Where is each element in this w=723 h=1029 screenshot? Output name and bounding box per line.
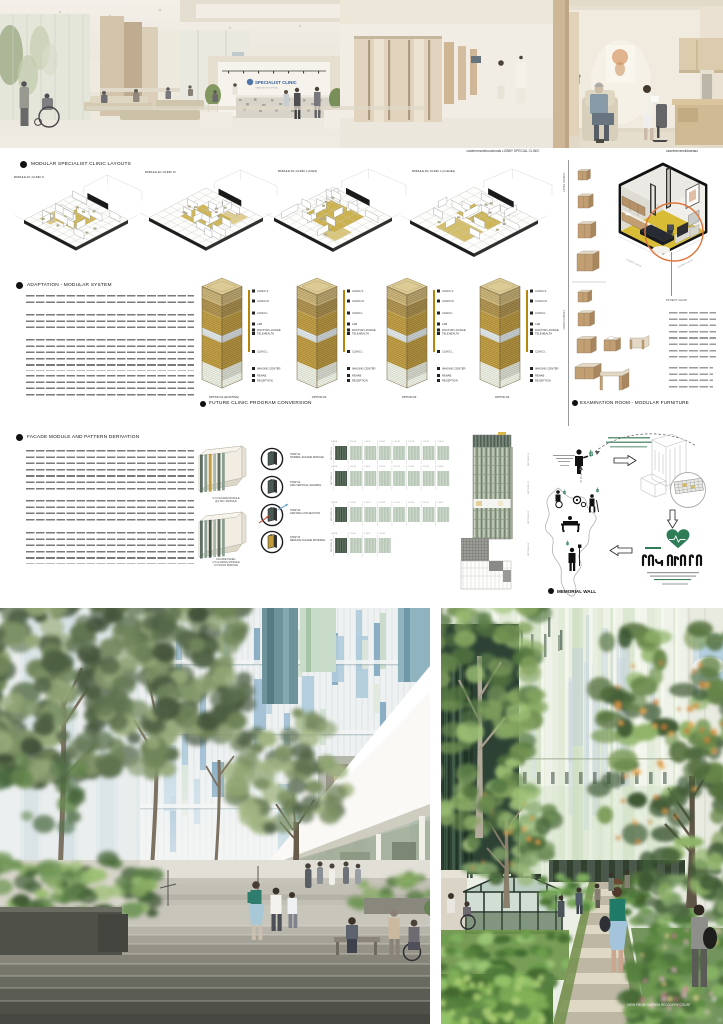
svg-text:1.50 M: 1.50 M [379, 441, 385, 443]
svg-text:IMAGING CENTER: IMAGING CENTER [442, 367, 466, 371]
svg-text:CLINIC L: CLINIC L [352, 350, 364, 354]
svg-text:1.50 M: 1.50 M [408, 466, 414, 468]
svg-text:DOCTOR LOUNGE: DOCTOR LOUNGE [442, 328, 466, 332]
svg-text:CLINIC S: CLINIC S [257, 289, 269, 293]
svg-text:RECEPTION: RECEPTION [257, 379, 273, 383]
svg-text:1.50 M: 1.50 M [423, 441, 429, 443]
svg-text:CLINIC 5.40 M: CLINIC 5.40 M [626, 258, 642, 268]
svg-text:1.50 M: 1.50 M [393, 502, 399, 504]
svg-text:CLINIC L: CLINIC L [442, 311, 454, 315]
svg-text:1.50 M: 1.50 M [364, 502, 370, 504]
svg-text:1.50 M: 1.50 M [393, 441, 399, 443]
svg-text:RECEPTION: RECEPTION [442, 379, 458, 383]
svg-text:1.50 M: 1.50 M [331, 533, 337, 535]
svg-text:TELEHEALTH: TELEHEALTH [535, 332, 552, 336]
svg-text:CLINIC M: CLINIC M [352, 299, 365, 303]
svg-text:1.50 M: 1.50 M [350, 533, 356, 535]
svg-text:1.50 M: 1.50 M [331, 502, 337, 504]
svg-text:REHAB: REHAB [442, 374, 451, 378]
svg-text:1.50 M: 1.50 M [364, 466, 370, 468]
svg-text:CLINIC S: CLINIC S [352, 289, 364, 293]
svg-text:CLINIC L: CLINIC L [442, 350, 454, 354]
svg-text:1.50 M: 1.50 M [364, 533, 370, 535]
svg-text:IMAGING CENTER: IMAGING CENTER [535, 367, 559, 371]
svg-text:1.50 M: 1.50 M [350, 466, 356, 468]
svg-text:1.50 M: 1.50 M [350, 502, 356, 504]
svg-text:1.50 M: 1.50 M [379, 533, 385, 535]
svg-text:MEMORIAL WALL: MEMORIAL WALL [557, 589, 596, 594]
svg-text:1.50 M: 1.50 M [350, 441, 356, 443]
svg-text:CLINIC M: CLINIC M [442, 299, 455, 303]
svg-text:IMAGING CENTER: IMAGING CENTER [257, 367, 281, 371]
svg-text:IMAGING CENTER: IMAGING CENTER [352, 367, 376, 371]
svg-text:B: B [589, 452, 594, 458]
svg-text:CLINIC L: CLINIC L [535, 311, 547, 315]
svg-text:LAB: LAB [352, 322, 357, 326]
svg-text:1.50 M: 1.50 M [379, 466, 385, 468]
svg-text:TELEHEALTH: TELEHEALTH [352, 332, 369, 336]
svg-text:CLINIC M: CLINIC M [535, 299, 548, 303]
svg-text:REHAB: REHAB [257, 374, 266, 378]
svg-text:TELEHEALTH: TELEHEALTH [257, 332, 274, 336]
svg-text:1.50 M: 1.50 M [423, 466, 429, 468]
svg-text:DOCTOR LOUNGE: DOCTOR LOUNGE [257, 328, 281, 332]
svg-text:CLINIC L: CLINIC L [257, 311, 269, 315]
svg-text:CLINIC L: CLINIC L [535, 350, 547, 354]
svg-text:1.50 M: 1.50 M [408, 441, 414, 443]
svg-text:1.50 M: 1.50 M [437, 466, 443, 468]
svg-text:LAB: LAB [257, 322, 262, 326]
svg-text:CLINIC L: CLINIC L [352, 311, 364, 315]
svg-text:TELEHEALTH: TELEHEALTH [442, 332, 459, 336]
svg-text:REHAB: REHAB [535, 374, 544, 378]
svg-text:RECEPTION: RECEPTION [535, 379, 551, 383]
svg-text:1.50 M: 1.50 M [393, 466, 399, 468]
svg-text:RECEPTION: RECEPTION [352, 379, 368, 383]
svg-text:1.50 M: 1.50 M [331, 466, 337, 468]
svg-text:CLINIC S: CLINIC S [535, 289, 547, 293]
svg-text:1.50 M: 1.50 M [437, 502, 443, 504]
svg-text:1.50 M: 1.50 M [408, 502, 414, 504]
svg-text:CLINIC L: CLINIC L [257, 350, 269, 354]
svg-text:DOCTOR LOUNGE: DOCTOR LOUNGE [535, 328, 559, 332]
svg-text:CLINIC M: CLINIC M [257, 299, 270, 303]
svg-text:LAB: LAB [535, 322, 540, 326]
svg-text:LAB: LAB [442, 322, 447, 326]
svg-text:1.50 M: 1.50 M [437, 441, 443, 443]
svg-text:1.50 M: 1.50 M [364, 441, 370, 443]
svg-text:1.50 M: 1.50 M [379, 502, 385, 504]
svg-text:REHAB: REHAB [352, 374, 361, 378]
svg-text:CLINIC S: CLINIC S [442, 289, 454, 293]
svg-text:1.50 M: 1.50 M [423, 502, 429, 504]
svg-text:DOCTOR LOUNGE: DOCTOR LOUNGE [352, 328, 376, 332]
svg-text:1.50 M: 1.50 M [331, 441, 337, 443]
svg-text:VIEW FROM GARDEN RECOVERY COUR: VIEW FROM GARDEN RECOVERY COURT [627, 1003, 691, 1007]
